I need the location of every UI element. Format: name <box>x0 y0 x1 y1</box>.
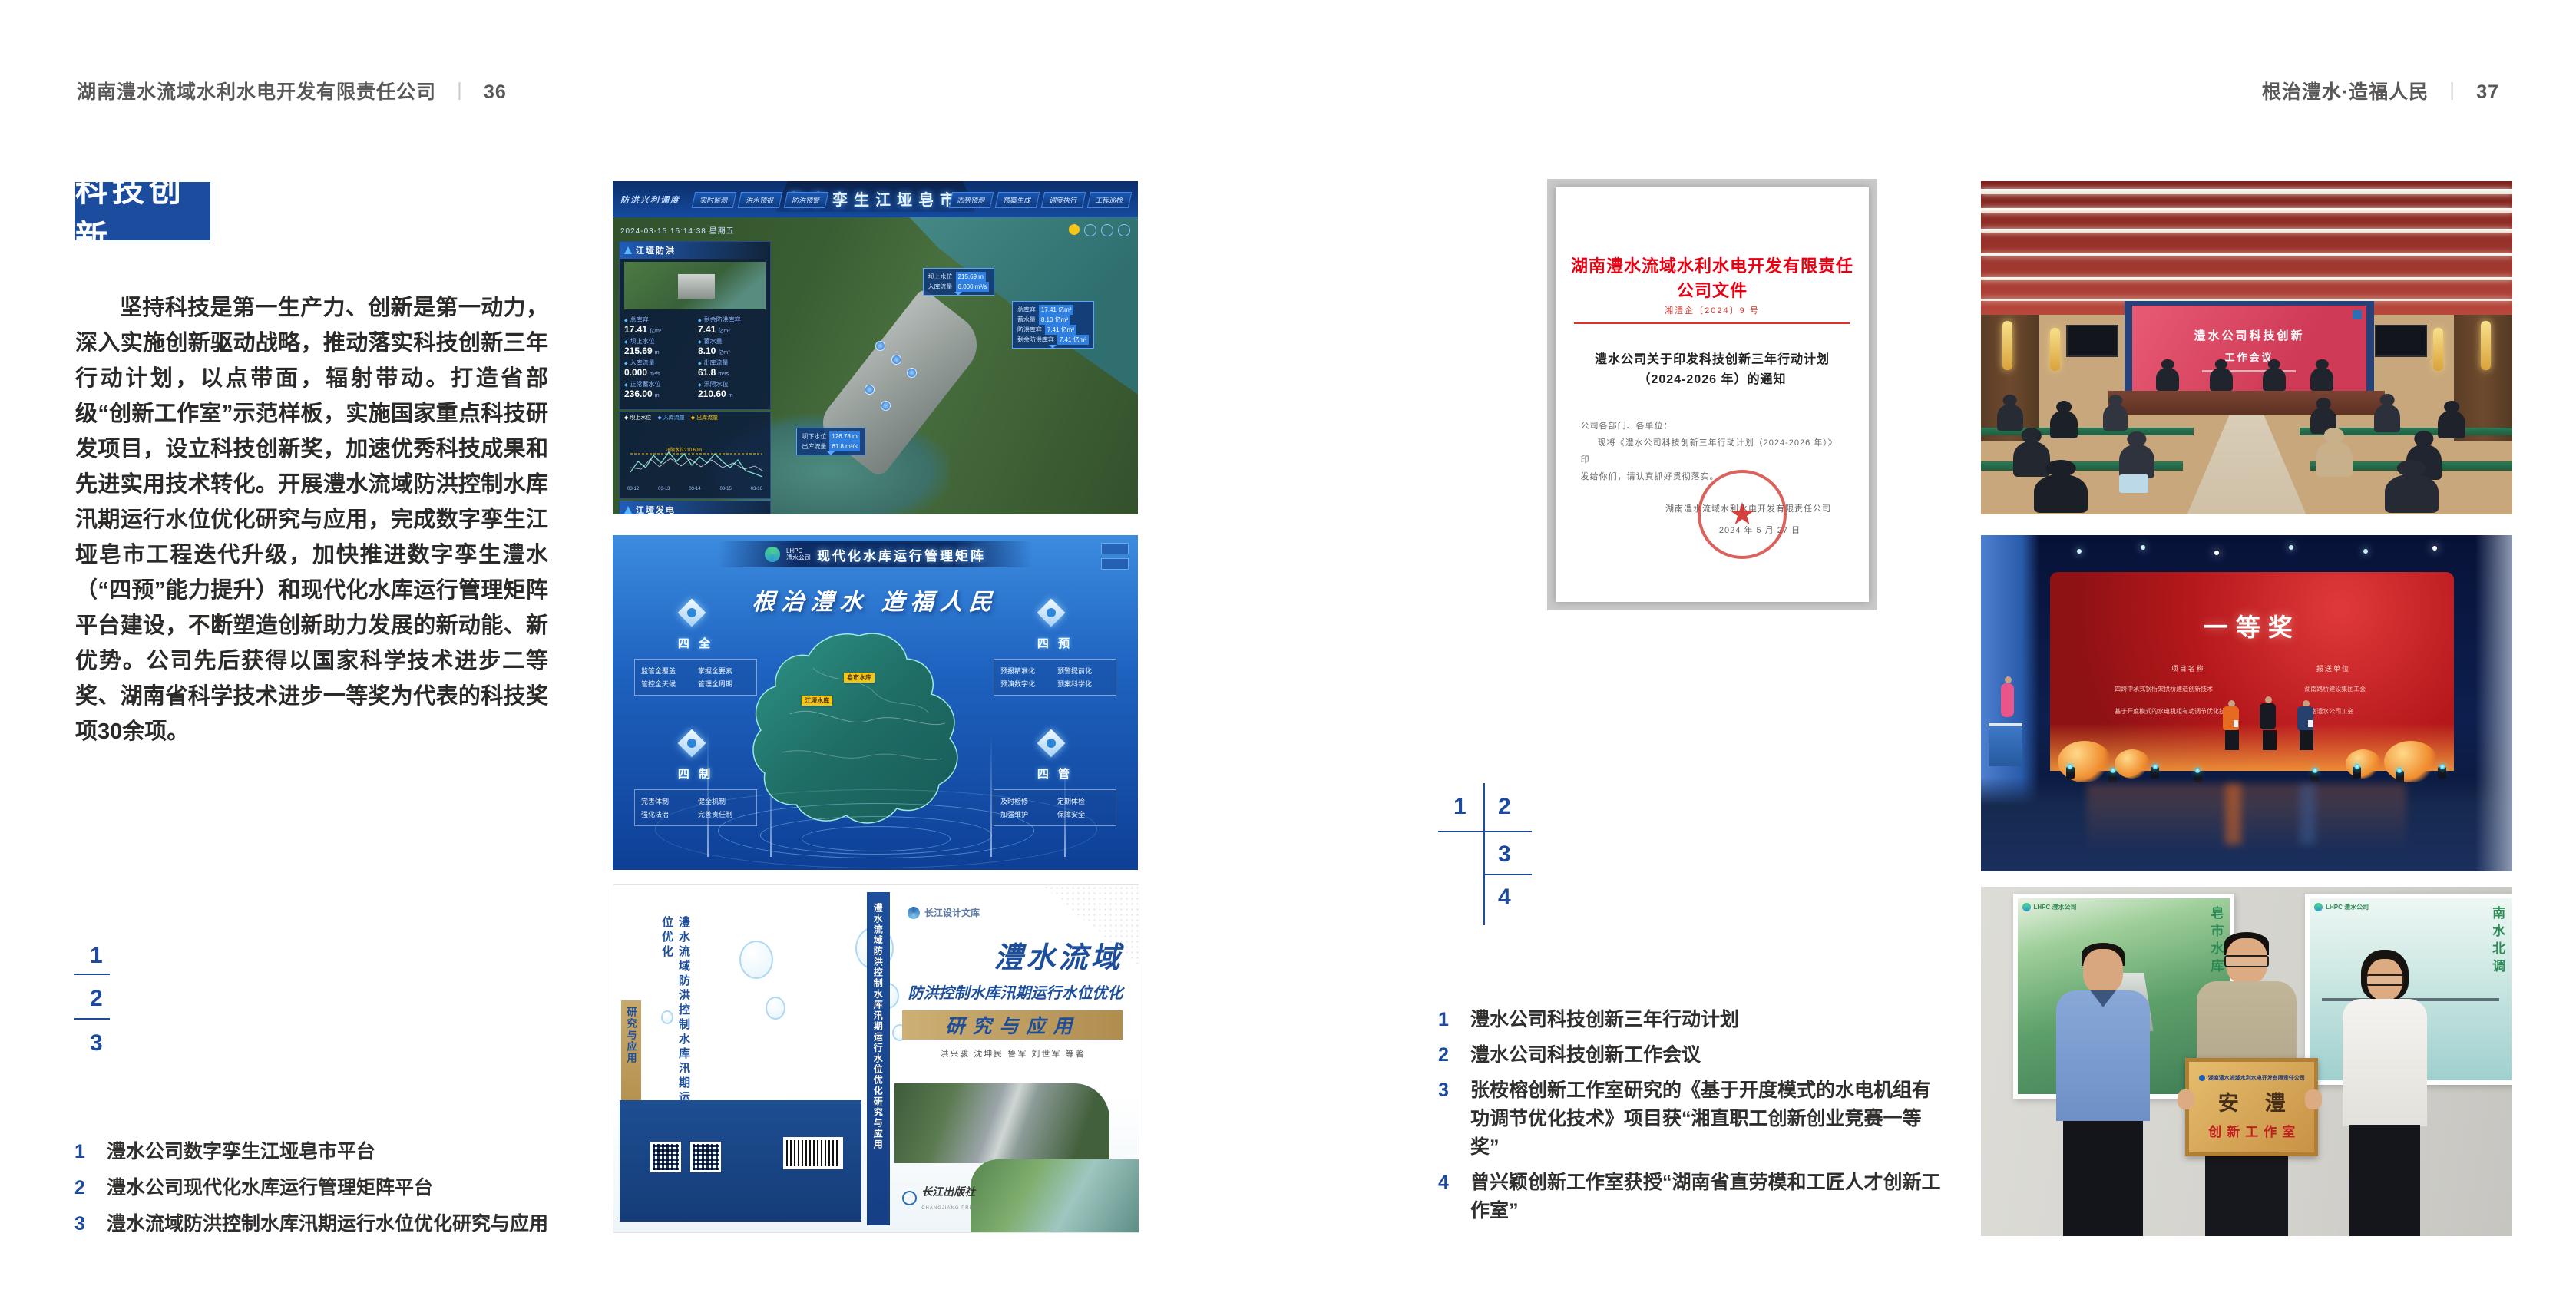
map-label-jiangya: 江垭水库 <box>802 696 832 706</box>
level-flow-chart-panel: 坝上水位 入库流量 出库流量 汛限水位210.60m 03-1203-1303-… <box>619 412 771 499</box>
caption-list-left: 1 澧水公司数字孪生江垭皂市平台 2 澧水公司现代化水库运行管理矩阵平台 3 澧… <box>74 1138 566 1238</box>
dam-thumbnail <box>624 262 766 309</box>
caption-text: 澧水流域防洪控制水库汛期运行水位优化研究与应用 <box>107 1210 548 1238</box>
award-row-org: 湖南路桥建设集团工会 <box>2304 685 2366 693</box>
figure-number: 3 <box>90 1030 103 1056</box>
figure-book-cover: 澧水流域防洪控制水库汛期运行水位优化 研究与应用 澧水流域防洪控制水库汛期运行水… <box>613 884 1139 1233</box>
droplet-decor <box>766 997 785 1020</box>
toolbar-icons <box>1069 224 1130 236</box>
stat: 蓄水量8.10亿m³ <box>698 337 766 356</box>
recipient-legs <box>2263 730 2277 750</box>
plaque-main-text: 安澧 <box>2192 1086 2312 1116</box>
legend-item: 坝上水位 <box>624 414 651 422</box>
document-title: 澧水公司关于印发科技创新三年行动计划 （2024-2026 年）的通知 <box>1571 350 1853 390</box>
gate-marker <box>907 368 917 378</box>
trousers <box>2349 1125 2420 1236</box>
caption: 3 澧水流域防洪控制水库汛期运行水位优化研究与应用 <box>74 1210 566 1238</box>
wall-lamp <box>2050 328 2060 371</box>
running-head-right: 根治澧水·造福人民丨37 <box>2262 77 2499 104</box>
panel-header: 江垭防洪 <box>620 242 770 259</box>
stat: 出库流量61.8m³/s <box>698 359 766 378</box>
user-icon <box>1069 224 1080 235</box>
caption: 1 澧水公司科技创新三年行动计划 <box>1438 1006 1945 1034</box>
panel-title: 江垭发电 <box>636 504 676 514</box>
seal-star-icon: ★ <box>1728 497 1756 532</box>
qr-code <box>650 1142 681 1172</box>
recipient-dark-suit <box>2260 703 2276 729</box>
award-row-project: 基于开度模式的水电机组有功调节优化技术 <box>2115 707 2231 716</box>
series-badge: 长江设计文库 <box>908 906 980 919</box>
stat: 总库容17.41亿m³ <box>624 316 692 335</box>
wall-tv <box>2066 325 2118 357</box>
nav-item: 预案生成 <box>995 192 1040 208</box>
caption: 2 澧水公司现代化水库运行管理矩阵平台 <box>74 1174 566 1202</box>
flood-panel: 江垭防洪 总库容17.41亿m³ 剩余防洪库容7.41亿m³ 坝上水位215.6… <box>619 241 771 410</box>
floor-reflection <box>2300 784 2316 845</box>
screen-line-2: 工作会议 <box>2224 349 2273 364</box>
tool-icon <box>1084 224 1096 236</box>
tooltip-capacity: 总库容17.41 亿m³ 蓄水量8.10 亿m³ 防洪库容7.41 亿m³ 剩余… <box>1012 301 1094 349</box>
award-row-project: 四跨中承式钢桁架拱桥建造创新技术 <box>2115 685 2213 693</box>
nav-left: 实时监测 洪水预报 防洪预警 <box>693 192 827 208</box>
white-tee <box>2343 999 2427 1126</box>
caption-number: 2 <box>74 1174 107 1202</box>
stat: 入库流量0.000m³/s <box>624 359 692 378</box>
recipient-navy-jacket <box>2297 706 2313 731</box>
corner-panel-siquan: 四 全 监管全覆盖掌握全要素 管控全天候管理全周期 <box>634 603 757 696</box>
caption-number: 2 <box>1438 1041 1470 1070</box>
caption-text: 曾兴颖创新工作室获授“湖南省直劳模和工匠人才创新工作室” <box>1470 1169 1945 1225</box>
lhpc-logo-icon <box>765 547 780 562</box>
poster-brand: LHPC 澧水公司 <box>2314 903 2369 911</box>
panel-header: 江垭发电 <box>620 501 770 514</box>
recipient-legs <box>2225 730 2239 750</box>
page-number-left: 36 <box>484 81 507 103</box>
book-title-band: 研究与应用 <box>902 1010 1123 1040</box>
photo-innovation-workstation-plaque: LHPC 澧水公司 皂市水库 LHPC 澧水公司 南水北调 <box>1981 887 2512 1236</box>
recipient-head <box>2228 700 2235 707</box>
document-number: 湘澧企〔2024〕9 号 <box>1556 304 1869 316</box>
book-title-mid: 防洪控制水库汛期运行水位优化 <box>902 980 1123 1003</box>
figure-official-document: 湖南澧水流域水利水电开发有限责任公司文件 湘澧企〔2024〕9 号 澧水公司关于… <box>1547 179 1877 610</box>
golden-glow <box>2346 749 2381 779</box>
dashboard-timestamp: 2024-03-15 15:14:38 星期五 <box>620 224 735 236</box>
matrix-title: 现代化水库运行管理矩阵 <box>817 545 986 564</box>
plaque-sub-text: 创新工作室 <box>2203 1121 2300 1140</box>
slogan-title: 根治澧水·造福人民 <box>2262 81 2429 103</box>
wall-lamp <box>2002 321 2012 370</box>
stat: 剩余防洪库容7.41亿m³ <box>698 316 766 335</box>
panelist-silhouette <box>2156 368 2179 391</box>
stat: 汛限水位210.60m <box>698 380 766 399</box>
caption-text: 澧水公司数字孪生江垭皂市平台 <box>107 1138 375 1166</box>
lattice-hline <box>1438 831 1532 832</box>
back-cover-band: 研究与应用 <box>621 1000 641 1100</box>
wall-lamp <box>2433 328 2443 371</box>
host-head <box>2005 676 2012 683</box>
figure-number-column-left: 1 2 3 <box>74 943 121 1066</box>
floor-reflection <box>2087 784 2406 851</box>
award-title: 一等奖 <box>2050 608 2454 643</box>
book-authors: 洪兴骏 沈坤民 鲁军 刘世军 等著 <box>902 1047 1123 1060</box>
hand <box>2178 1089 2194 1109</box>
droplet-decor <box>739 941 773 979</box>
book-spine: 澧水流域防洪控制水库汛期运行水位优化研究与应用 <box>867 892 890 1225</box>
dam-shape <box>678 274 715 299</box>
attendee-silhouette <box>2013 441 2050 477</box>
front-title-block: 澧水流域 防洪控制水库汛期运行水位优化 研究与应用 洪兴骏 沈坤民 鲁军 刘世军… <box>902 934 1123 1060</box>
wall-lamp <box>2481 321 2491 370</box>
nav-item: 实时监测 <box>692 192 736 208</box>
glasses <box>2224 955 2269 967</box>
cover-photo-gorge-dam <box>894 1083 1109 1163</box>
caption: 2 澧水公司科技创新工作会议 <box>1438 1041 1945 1070</box>
corner-title: 四 全 <box>634 635 757 651</box>
tool-icon <box>1118 224 1130 236</box>
photo-award-ceremony: 一等奖 项目名称 报送单位 四跨中承式钢桁架拱桥建造创新技术 湖南路桥建设集团工… <box>1981 535 2512 871</box>
caption-text: 澧水公司现代化水库运行管理矩阵平台 <box>107 1174 433 1202</box>
caption-text: 张桉榕创新工作室研究的《基于开度模式的水电机组有功调节优化技术》项目获“湘直职工… <box>1470 1076 1945 1162</box>
attendee-silhouette <box>1997 405 2023 431</box>
caption-list-right: 1 澧水公司科技创新三年行动计划 2 澧水公司科技创新工作会议 3 张桉榕创新工… <box>1438 1006 1945 1225</box>
matrix-header: LHPC澧水公司 现代化水库运行管理矩阵 <box>718 541 1033 567</box>
page-number-right: 37 <box>2476 81 2499 103</box>
floor-reflection <box>2225 784 2241 845</box>
host-figure <box>2001 683 2014 717</box>
photo-innovation-meeting: 澧水公司科技创新 工作会议 <box>1981 181 2512 514</box>
figure-number: 1 <box>90 943 103 969</box>
platform-ring <box>655 789 1098 868</box>
stat: 坝上水位215.69m <box>624 337 692 356</box>
head-divider: 丨 <box>450 81 470 103</box>
section-badge: 科技创新 <box>75 182 210 240</box>
panel-title: 江垭防洪 <box>636 244 676 256</box>
changjiang-design-logo-icon <box>908 907 920 919</box>
document-signature: 湖南澧水流域水利水电开发有限责任公司 2024 年 5 月 27 日 <box>1556 501 1831 539</box>
fullscreen-button <box>1101 543 1129 554</box>
figure-number: 2 <box>90 986 103 1012</box>
book-title-top: 澧水流域 <box>902 934 1123 976</box>
stat: 正常蓄水位236.00m <box>624 380 692 399</box>
nav-item: 防洪预警 <box>784 192 828 208</box>
figure-number-divider <box>74 974 110 975</box>
figure-number-lattice-right: 1 2 3 4 <box>1432 783 1539 937</box>
document-red-header: 湖南澧水流域水利水电开发有限责任公司文件 <box>1568 253 1856 302</box>
dashboard-top-bar: 数字孪生江垭皂市 防洪兴利调度 实时监测 洪水预报 防洪预警 态势预测 预案生成… <box>613 181 1138 217</box>
attendee-silhouette-tan-coat <box>2316 441 2353 477</box>
chart-legend: 坝上水位 入库流量 出库流量 <box>620 412 770 423</box>
caption-number: 4 <box>1438 1169 1470 1225</box>
attendee-silhouette <box>2034 474 2088 513</box>
glasses <box>2366 974 2404 986</box>
corner-title: 四 管 <box>994 765 1116 782</box>
brochure-spread: 湖南澧水流域水利水电开发有限责任公司丨36 根治澧水·造福人民丨37 科技创新 … <box>0 0 2576 1306</box>
person-left <box>2050 943 2156 1236</box>
nav-right: 态势预测 预案生成 调度执行 工程巡检 <box>951 192 1130 208</box>
caption-number: 1 <box>74 1138 107 1166</box>
nav-item: 调度执行 <box>1041 192 1086 208</box>
maintenance-icon <box>1037 729 1066 758</box>
document-body: 公司各部门、各单位： 现将《澧水公司科技创新三年行动计划（2024-2026 年… <box>1581 418 1844 485</box>
figure-digital-twin-dashboard: 数字孪生江垭皂市 防洪兴利调度 实时监测 洪水预报 防洪预警 态势预测 预案生成… <box>613 181 1138 514</box>
brand-text: LHPC澧水公司 <box>786 547 811 561</box>
person-right <box>2332 950 2438 1236</box>
company-logo-icon <box>2199 1075 2205 1081</box>
attendee-silhouette <box>2119 445 2154 478</box>
flood-stats: 总库容17.41亿m³ 剩余防洪库容7.41亿m³ 坝上水位215.69m 蓄水… <box>620 312 770 402</box>
attendee-silhouette <box>2438 411 2465 438</box>
trophy <box>2234 720 2238 727</box>
hand <box>2305 1089 2322 1109</box>
caption-text: 澧水公司科技创新三年行动计划 <box>1470 1006 1739 1034</box>
caption-number: 3 <box>74 1210 107 1238</box>
sail-icon <box>624 246 632 254</box>
trophy <box>2308 720 2313 727</box>
caption: 1 澧水公司数字孪生江垭皂市平台 <box>74 1138 566 1166</box>
wall-tv <box>2375 325 2427 357</box>
caption-number: 1 <box>1438 1006 1470 1034</box>
golden-glow <box>2384 741 2438 782</box>
barcode <box>783 1137 843 1169</box>
menu-button <box>1101 558 1129 570</box>
publisher-name-en: CHANGJIANG PRESS <box>921 1206 980 1211</box>
map-label-zaoshi: 皂市水库 <box>844 673 875 683</box>
head-table <box>2108 391 2385 414</box>
column-project: 项目名称 <box>2171 663 2205 673</box>
recipient-head <box>2303 700 2310 707</box>
gate-marker <box>891 355 901 365</box>
panelist-silhouette <box>2263 368 2286 391</box>
tissue-box <box>2119 474 2148 493</box>
plaque-org-line: 湖南澧水流域水利水电开发有限责任公司 <box>2199 1074 2305 1082</box>
chart-x-axis: 03-1203-1303-1403-1503-16 <box>620 487 770 491</box>
nav-item: 工程巡检 <box>1087 192 1132 208</box>
poster-brand: LHPC 澧水公司 <box>2022 903 2077 911</box>
lattice-hline-short <box>1483 874 1532 875</box>
mode-tag: 防洪兴利调度 <box>620 193 680 206</box>
figure-matrix-platform: LHPC澧水公司 现代化水库运行管理矩阵 根治澧水 造福人民 皂市水库 江垭水库… <box>613 535 1138 870</box>
corner-panel-siyu: 四 预 预报精准化预警提前化 预演数字化预案科学化 <box>994 603 1116 696</box>
cover-photo-dam <box>971 1159 1139 1232</box>
figure-number: 2 <box>1498 794 1511 820</box>
trousers <box>2063 1121 2143 1236</box>
panelist-silhouette <box>2210 368 2233 391</box>
running-head-left: 湖南澧水流域水利水电开发有限责任公司丨36 <box>77 77 507 104</box>
back-bottom-band <box>620 1100 861 1222</box>
monitor-icon <box>678 599 706 627</box>
recipient-legs <box>2300 730 2313 750</box>
gate-marker <box>865 385 875 395</box>
recipient-orange-jacket <box>2223 706 2239 731</box>
lhpc-logo-icon <box>2022 903 2031 911</box>
sail-icon <box>624 506 632 514</box>
publisher-mark: 长江出版社 CHANGJIANG PRESS <box>902 1184 980 1213</box>
slide-logo <box>2353 310 2362 319</box>
spine-title: 澧水流域防洪控制水库汛期运行水位优化研究与应用 <box>871 903 885 1156</box>
golden-glow <box>2115 749 2150 779</box>
caption: 4 曾兴颖创新工作室获授“湖南省直劳模和工匠人才创新工作室” <box>1438 1169 1945 1225</box>
attendee-silhouette <box>2103 405 2128 431</box>
series-name: 长江设计文库 <box>924 906 980 919</box>
figure-number: 1 <box>1453 794 1467 820</box>
official-seal: ★ <box>1698 470 1787 559</box>
nav-item: 洪水预报 <box>738 192 782 208</box>
publisher-logo-icon <box>902 1191 917 1205</box>
corner-title: 四 预 <box>994 635 1116 651</box>
figure-number: 4 <box>1498 884 1511 911</box>
caption-text: 澧水公司科技创新工作会议 <box>1470 1041 1701 1070</box>
led-screen: 一等奖 项目名称 报送单位 四跨中承式钢桁架拱桥建造创新技术 湖南路桥建设集团工… <box>2050 572 2454 770</box>
document-page: 湖南澧水流域水利水电开发有限责任公司文件 湘澧企〔2024〕9 号 澧水公司关于… <box>1556 187 1869 602</box>
column-org: 报送单位 <box>2316 663 2350 673</box>
figure-number: 3 <box>1498 841 1511 868</box>
ceiling <box>1981 181 2512 315</box>
stage-truss <box>1981 535 2512 569</box>
mini-line-chart: 汛限水位210.60m <box>620 423 770 483</box>
attendee-silhouette <box>2385 474 2439 513</box>
caption: 3 张桉榕创新工作室研究的《基于开度模式的水电机组有功调节优化技术》项目获“湘直… <box>1438 1076 1945 1162</box>
head-divider: 丨 <box>2442 81 2462 103</box>
lattice-vline <box>1483 783 1485 925</box>
nav-item: 态势预测 <box>949 192 994 208</box>
legend-item: 出库流量 <box>691 414 718 422</box>
lhpc-logo-icon <box>2314 903 2323 911</box>
power-panel: 江垭发电 年发电计划6.3000亿度 年累计发电量2907亿度 月累计发电量32… <box>619 501 771 514</box>
back-band-text: 研究与应用 <box>624 1007 639 1064</box>
body-paragraph: 坚持科技是第一生产力、创新是第一动力，深入实施创新驱动战略，推动落实科技创新三年… <box>75 290 548 749</box>
institution-icon <box>678 729 706 758</box>
publisher-name: 长江出版社 <box>921 1185 975 1198</box>
podium <box>1989 723 2022 766</box>
threshold-label: 汛限水位210.60m <box>666 447 702 453</box>
attendee-silhouette <box>2050 411 2078 438</box>
poster-calligraphy: 南水北调 <box>2488 906 2505 977</box>
forecast-icon <box>1037 599 1066 627</box>
panelist-silhouette <box>2310 368 2333 391</box>
document-rule <box>1574 322 1850 324</box>
caption-number: 3 <box>1438 1076 1470 1162</box>
attendee-silhouette <box>2374 405 2400 432</box>
innovation-workstation-plaque: 湖南澧水流域水利水电开发有限责任公司 安澧 创新工作室 <box>2185 1058 2318 1156</box>
legend-item: 入库流量 <box>657 414 684 422</box>
company-name: 湖南澧水流域水利水电开发有限责任公司 <box>77 81 436 103</box>
stage-right-wing <box>2475 535 2512 871</box>
tool-icon <box>1101 224 1113 236</box>
blue-polo <box>2056 990 2150 1121</box>
face <box>2083 949 2123 994</box>
qr-code <box>690 1142 721 1172</box>
figure-number-divider <box>74 1018 110 1020</box>
tooltip-downstream: 坝下水位126.78 m 出库流量61.8 m³/s <box>796 428 865 455</box>
tooltip-upstream: 坝上水位215.69 m 入库流量0.000 m³/s <box>923 268 995 296</box>
corner-title: 四 制 <box>634 765 757 782</box>
screen-line-1: 澧水公司科技创新 <box>2194 327 2304 343</box>
